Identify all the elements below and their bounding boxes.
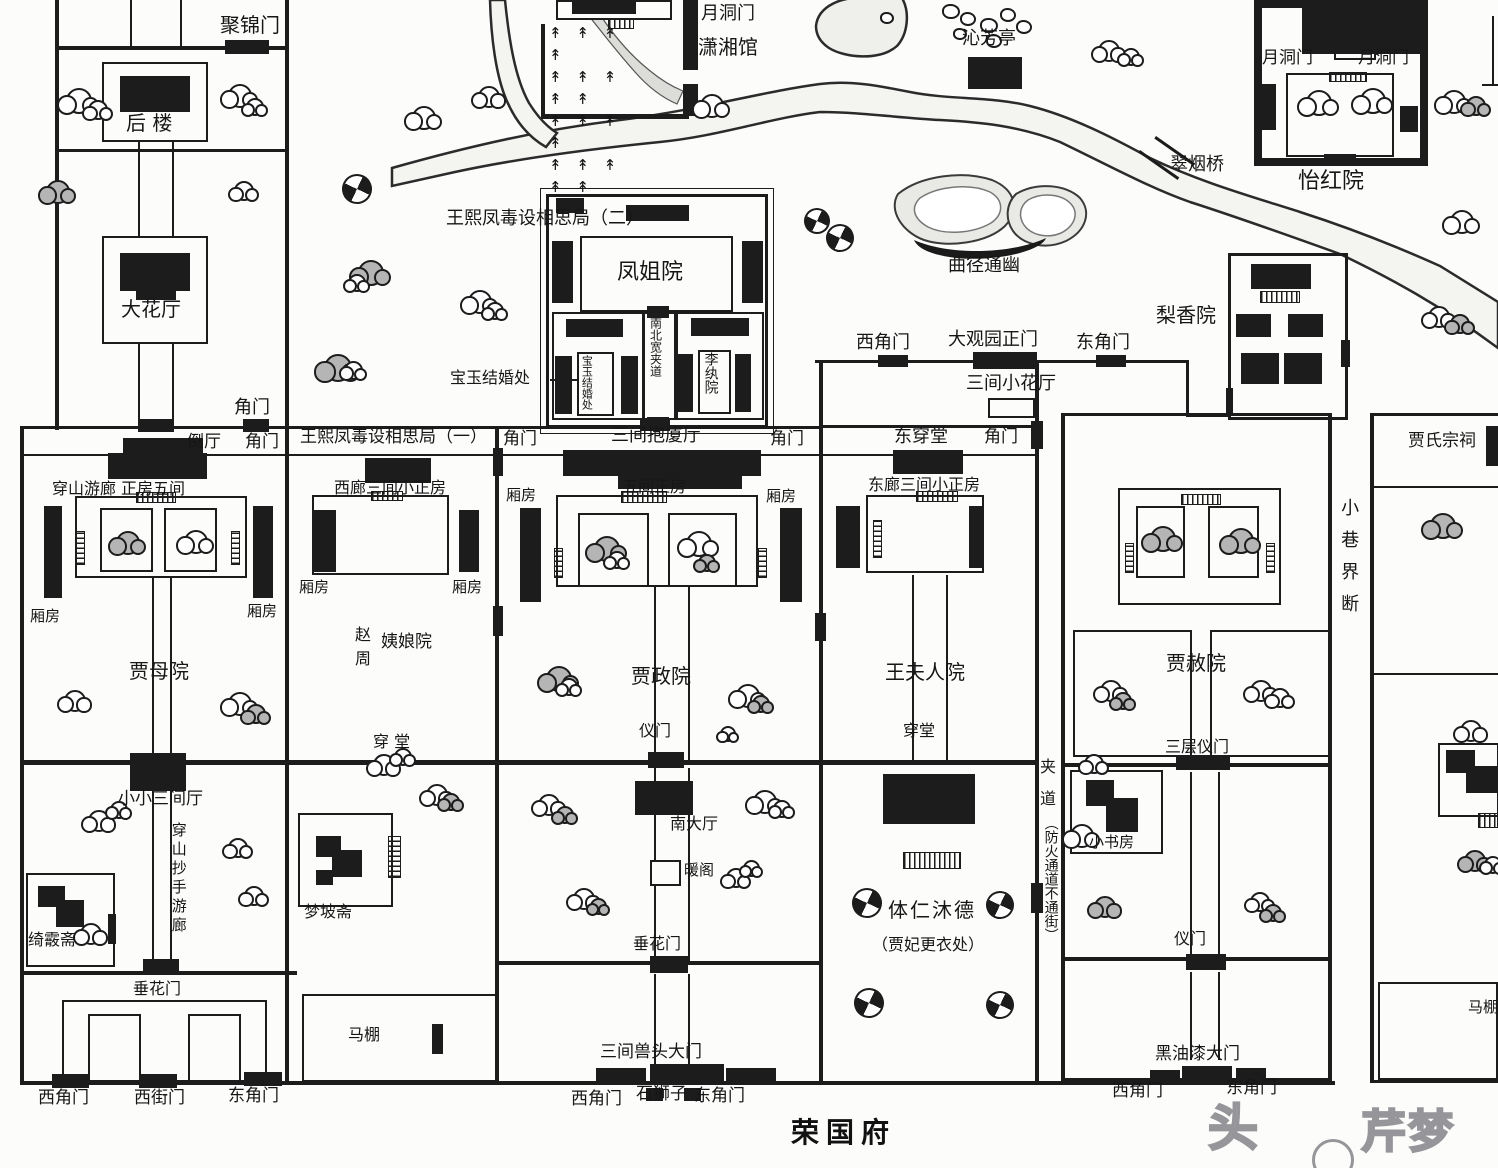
room-outline xyxy=(866,495,984,573)
map-label: 西街门 xyxy=(134,1089,185,1108)
wall xyxy=(1061,413,1065,1085)
rock-icon xyxy=(880,12,894,24)
bamboo-row: ↟ ↟ ↟ ↟ xyxy=(549,110,641,154)
gate-block xyxy=(650,956,688,973)
gate-block xyxy=(1341,340,1350,367)
tree-icon xyxy=(348,274,366,292)
steps-hatch xyxy=(1266,543,1275,573)
map-label: 绮霰斋 xyxy=(28,931,76,949)
map-label: 三间小花厅 xyxy=(966,374,1056,394)
wall xyxy=(130,0,132,46)
steps-hatch xyxy=(1478,813,1498,828)
map-label: 东角门 xyxy=(1076,333,1130,353)
map-label: 月洞门 xyxy=(1358,49,1409,68)
building-block xyxy=(1466,766,1498,793)
map-label: 厢房 xyxy=(247,603,277,620)
steps-hatch xyxy=(554,548,563,578)
tree-icon xyxy=(752,695,770,713)
steps-hatch xyxy=(1181,494,1221,505)
building-block xyxy=(1241,353,1279,384)
map-label: 厢房 xyxy=(299,579,329,596)
wall xyxy=(180,0,182,46)
wall xyxy=(20,428,24,1085)
wall xyxy=(297,454,497,456)
gate-block xyxy=(650,1064,724,1083)
gate-block xyxy=(878,355,908,367)
map-label: 东穿堂 xyxy=(894,427,948,447)
map-label: 垂花门 xyxy=(133,980,181,998)
map-label: 三层仪门 xyxy=(1165,738,1229,756)
map-label: （防火通道不通街） xyxy=(1042,816,1058,942)
map-label: 东角门 xyxy=(228,1087,279,1106)
building-block xyxy=(691,318,749,336)
map-label: 道 xyxy=(1040,790,1056,808)
tree-icon xyxy=(1460,720,1482,742)
steps-hatch xyxy=(1125,543,1134,573)
map-label: 角门 xyxy=(984,428,1018,447)
map-label: 西廊三间小正房 xyxy=(334,479,446,497)
wall xyxy=(1372,1080,1498,1083)
map-label: 角门 xyxy=(503,430,537,449)
map-label: （贾妃更衣处） xyxy=(872,936,984,954)
wall xyxy=(138,142,140,238)
tree-icon xyxy=(608,551,626,569)
steps-hatch xyxy=(1260,291,1300,303)
map-label: 怡红院 xyxy=(1298,170,1364,195)
wall xyxy=(152,790,154,962)
building-block xyxy=(253,506,273,598)
map-label: 马棚 xyxy=(348,1026,380,1044)
tree-icon xyxy=(1084,754,1104,774)
gate-block xyxy=(1324,154,1356,166)
gate-block xyxy=(108,914,116,944)
tree-icon xyxy=(720,726,736,742)
water-path xyxy=(816,0,907,56)
map-label: 贾政院 xyxy=(631,665,691,687)
building-block xyxy=(555,356,572,414)
tree-icon xyxy=(1114,692,1132,710)
tree-icon xyxy=(773,800,791,818)
gate-block xyxy=(139,1074,177,1088)
map-label: 厢房 xyxy=(506,487,536,504)
steps-hatch xyxy=(388,836,401,878)
map-label: 角门 xyxy=(234,398,270,418)
building-block xyxy=(120,253,190,291)
watermark-text: 头条 xyxy=(1208,1088,1305,1168)
building-block xyxy=(1261,84,1276,130)
tree-icon xyxy=(698,554,716,572)
building-block xyxy=(893,450,963,474)
gate-block xyxy=(143,959,179,975)
pavilion-block xyxy=(968,57,1022,89)
map-label: 西角门 xyxy=(571,1090,622,1109)
building-block xyxy=(1400,106,1418,132)
map-label: 石狮子 xyxy=(636,1085,687,1104)
building-block xyxy=(836,506,860,568)
gate-block xyxy=(138,419,174,432)
map-label: 仪门 xyxy=(1174,930,1206,948)
room-outline xyxy=(188,1014,241,1082)
building-block xyxy=(130,753,186,791)
gate-block xyxy=(1031,421,1043,449)
tree-icon xyxy=(1450,210,1474,234)
rock-icon xyxy=(1000,8,1016,22)
map-label: 三间抱厦厅 xyxy=(611,426,701,446)
steps-hatch xyxy=(903,852,961,869)
building-block xyxy=(635,781,693,815)
wall xyxy=(495,428,499,1085)
map-label: 贾氏宗祠 xyxy=(1408,432,1476,451)
wall xyxy=(1218,772,1220,958)
water-path xyxy=(914,187,1000,232)
map-label: 曲径通幽 xyxy=(948,256,1020,276)
wall xyxy=(1370,413,1498,416)
map-label: 东廊三间小正房 xyxy=(868,476,980,494)
map-label: 仪门 xyxy=(639,722,671,740)
building-block xyxy=(316,870,333,885)
map-label: 角门 xyxy=(770,430,804,449)
wall xyxy=(1492,16,1494,86)
map-label: 穿山抄手游廊 xyxy=(170,822,187,936)
map-label: 贾母院 xyxy=(129,660,189,682)
wall xyxy=(55,0,59,430)
map-label: 五间正房 xyxy=(622,478,686,496)
tree-icon xyxy=(556,806,574,824)
wall xyxy=(1370,413,1374,1083)
building-block xyxy=(735,354,751,412)
building-block xyxy=(1236,314,1271,337)
tree-icon xyxy=(700,94,724,118)
map-label: 南大厅 xyxy=(670,815,718,833)
tree-icon xyxy=(412,106,436,130)
wall xyxy=(172,142,174,238)
building-block xyxy=(108,453,207,479)
tree-icon xyxy=(228,838,248,858)
watermark-logo-icon xyxy=(1312,1139,1354,1168)
tree-icon xyxy=(1484,856,1498,874)
building-block xyxy=(1486,426,1498,466)
building-block xyxy=(883,774,975,824)
map-label: 宝玉结婚处 xyxy=(580,355,592,410)
map-label: 南北宽夹道 xyxy=(648,317,661,377)
tree-icon xyxy=(1228,528,1254,554)
wall xyxy=(1372,486,1498,488)
building-block xyxy=(969,506,983,568)
building-block xyxy=(1288,314,1323,337)
water-path xyxy=(490,0,557,147)
wall xyxy=(819,362,823,1085)
tree-icon xyxy=(344,361,363,380)
map-label: 聚锦门 xyxy=(220,14,280,36)
gate-block xyxy=(225,40,269,54)
tree-icon xyxy=(184,530,208,554)
gate-block xyxy=(648,752,684,768)
map-label: 月洞门 xyxy=(1262,49,1313,68)
building-block xyxy=(621,356,638,414)
wall xyxy=(541,24,545,118)
bamboo-row: ↟ ↟ ↟ ↟ ↟ xyxy=(549,66,641,110)
map-label: 西角门 xyxy=(38,1089,89,1108)
tree-icon xyxy=(1306,90,1332,116)
gate-block xyxy=(1226,388,1233,415)
tree-icon xyxy=(560,678,578,696)
map-label: 大花厅 xyxy=(121,298,181,320)
building-block xyxy=(566,319,623,337)
bamboo-grove-icon: ↟ ↟ ↟ ↟↟ ↟ ↟ ↟ ↟↟ ↟ ↟ ↟↟ ↟ ↟ ↟ ↟ xyxy=(549,22,641,198)
map-label: 穿山游廊 xyxy=(52,480,116,498)
map-label: 厢房 xyxy=(452,579,482,596)
map-label: 垂花门 xyxy=(633,935,681,953)
gate-block xyxy=(243,419,269,432)
map-label: 李纨院 xyxy=(702,352,718,394)
tree-icon xyxy=(1094,896,1116,918)
map-label: 黑油漆大门 xyxy=(1155,1045,1240,1064)
tree-icon xyxy=(590,898,607,915)
gate-block xyxy=(596,1068,646,1081)
tree-icon xyxy=(1122,48,1140,66)
building-block xyxy=(572,0,636,14)
steps-hatch xyxy=(873,520,882,558)
map-label: 周 xyxy=(355,650,371,668)
tree-icon xyxy=(1270,688,1290,708)
steps-hatch xyxy=(1329,72,1367,82)
gate-block xyxy=(432,1024,443,1054)
wall xyxy=(172,344,174,420)
gate-block xyxy=(1096,355,1126,367)
map-label: 倒厅 xyxy=(187,433,221,452)
map-label: 王熙凤毒设相思局（一） xyxy=(300,428,487,447)
rongguofu-map: 荣国府 头条 芹梦轩 聚锦门后 楼大花厅角门月洞门潇湘馆王熙凤毒设相思局（二）凤… xyxy=(0,0,1498,1168)
gate-block xyxy=(1182,1066,1232,1085)
map-label: 贾赦院 xyxy=(1166,652,1226,674)
room-outline xyxy=(302,994,499,1082)
map-label: 穿 堂 xyxy=(373,733,410,751)
tree-icon xyxy=(116,531,140,555)
map-label: 穿堂 xyxy=(903,722,935,740)
tree-icon xyxy=(246,704,266,724)
building-block xyxy=(677,354,693,412)
tree-icon xyxy=(244,886,264,906)
map-label: 月洞门 xyxy=(701,4,755,24)
map-label: 王夫人院 xyxy=(885,661,965,683)
building-block xyxy=(120,76,190,112)
tree-icon xyxy=(88,100,108,120)
map-label: 翠烟桥 xyxy=(1170,155,1224,175)
building-block xyxy=(552,241,573,303)
wall xyxy=(1482,84,1498,86)
watermark-text: 芹梦轩 xyxy=(1361,1095,1498,1168)
wall xyxy=(683,0,698,70)
building-block xyxy=(332,850,362,877)
tree-icon xyxy=(486,302,504,320)
map-label: 小小三间厅 xyxy=(118,790,203,809)
building-block xyxy=(459,510,479,572)
tree-icon xyxy=(80,923,102,945)
map-label: 马棚 xyxy=(1468,999,1498,1016)
tree-icon xyxy=(64,690,86,712)
room-outline xyxy=(88,1014,141,1082)
wall xyxy=(1372,673,1498,675)
gate-block xyxy=(1176,755,1230,770)
water-path xyxy=(1021,195,1076,236)
building-block xyxy=(44,506,62,598)
wall xyxy=(138,344,140,420)
tree-icon xyxy=(1450,314,1470,334)
steps-hatch xyxy=(608,18,634,29)
building-block xyxy=(780,508,802,602)
gate-block xyxy=(973,352,1037,369)
map-label: 西角门 xyxy=(856,333,910,353)
gate-block xyxy=(815,613,826,641)
tree-icon xyxy=(1264,904,1282,922)
rock-icon xyxy=(1016,20,1032,34)
tree-icon xyxy=(246,98,264,116)
tree-icon xyxy=(1466,96,1486,116)
steps-hatch xyxy=(758,548,767,578)
wall xyxy=(1035,362,1039,1085)
tree-icon xyxy=(234,181,254,201)
building-block xyxy=(1106,798,1138,832)
map-label: 三间兽头大门 xyxy=(600,1043,702,1062)
map-label: 赵 xyxy=(355,626,371,644)
map-label: 小书房 xyxy=(1089,834,1134,851)
rock-icon xyxy=(960,12,976,26)
map-label: 暖阁 xyxy=(684,862,714,879)
steps-hatch xyxy=(231,531,240,565)
map-label: 西角门 xyxy=(1112,1082,1163,1101)
gate-block xyxy=(493,606,503,636)
gate-block xyxy=(1186,954,1226,970)
map-label: 后 楼 xyxy=(126,112,172,134)
gate-block xyxy=(726,1068,776,1081)
building-block xyxy=(742,241,763,303)
map-label: 姨娘院 xyxy=(381,633,432,652)
map-label: 梦坡斋 xyxy=(304,903,352,921)
building-block xyxy=(563,450,761,476)
gate-block xyxy=(244,1072,282,1086)
map-label: 王熙凤毒设相思局（二） xyxy=(446,209,644,229)
map-label: 正房五间 xyxy=(121,480,185,498)
tree-icon xyxy=(1150,526,1176,552)
map-label: 宝玉结婚处 xyxy=(450,369,530,387)
tree-icon xyxy=(1430,513,1456,539)
building-block xyxy=(1251,264,1311,289)
tree-icon xyxy=(743,860,760,877)
map-label: 小巷界断 xyxy=(1338,498,1358,626)
gate-block xyxy=(52,1074,89,1088)
map-label: 厢房 xyxy=(30,608,60,625)
map-label: 东角门 xyxy=(694,1087,745,1106)
tree-icon xyxy=(442,793,460,811)
room-outline xyxy=(650,860,681,886)
tree-icon xyxy=(478,86,500,108)
room-outline xyxy=(988,398,1035,418)
map-label: 体仁沐德 xyxy=(888,899,976,921)
building-block xyxy=(314,510,336,572)
bamboo-row: ↟ ↟ ↟ ↟ ↟ xyxy=(549,154,641,198)
map-label: 厢房 xyxy=(766,488,796,505)
tree-icon xyxy=(1360,88,1386,114)
building-block xyxy=(520,508,541,602)
tree-icon xyxy=(46,180,70,204)
building-block xyxy=(1284,353,1322,384)
map-label: 夹 xyxy=(1040,758,1056,776)
page-title: 荣国府 xyxy=(791,1111,896,1151)
map-label: 潇湘馆 xyxy=(698,36,758,58)
map-label: 梨香院 xyxy=(1156,304,1216,326)
gate-block xyxy=(493,448,503,476)
steps-hatch xyxy=(76,531,85,565)
map-label: 角门 xyxy=(245,433,279,452)
map-label: 沁芳亭 xyxy=(962,29,1016,49)
wall xyxy=(1186,414,1230,417)
map-label: 凤姐院 xyxy=(617,261,683,286)
wall xyxy=(1186,360,1189,417)
building-block xyxy=(56,900,84,927)
wall xyxy=(285,0,289,1085)
watermark: 头条 芹梦轩 xyxy=(1208,1088,1498,1168)
room-outline xyxy=(1378,982,1498,1080)
map-label: 大观园正门 xyxy=(948,330,1038,350)
rock-icon xyxy=(942,4,960,19)
